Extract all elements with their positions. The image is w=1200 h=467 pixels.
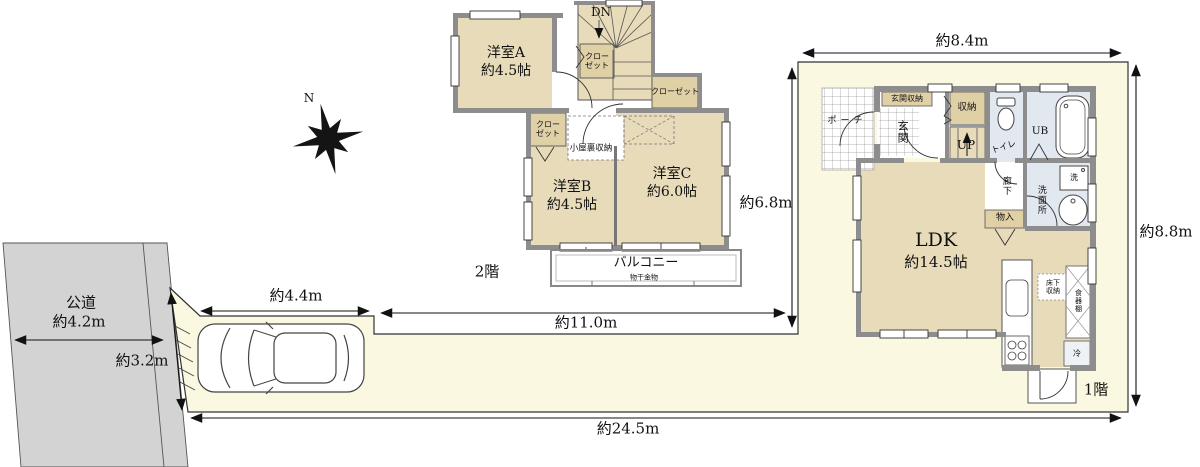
- washer-label: 洗: [1070, 173, 1078, 183]
- total-length-dimension: 約24.5m: [597, 419, 660, 439]
- unit-bath-label: UB: [1032, 125, 1049, 139]
- road-width-label: 約4.2m: [52, 312, 105, 332]
- car-icon: [198, 322, 364, 394]
- washroom-label: 洗面所: [1034, 185, 1046, 215]
- stairs-down-label: DN: [591, 5, 611, 21]
- balcony-note-label: 物干金物: [630, 273, 658, 282]
- north-label: N: [304, 91, 315, 107]
- right-depth-dimension: 約8.8m: [1139, 222, 1192, 242]
- closet-label-2: クローゼット: [651, 87, 699, 97]
- stairs-up-label: UP: [957, 138, 975, 154]
- cupboard-label: 食器棚: [1073, 289, 1082, 313]
- closet-label-1: クローゼット: [582, 52, 612, 70]
- balcony-label: バルコニー: [614, 256, 679, 273]
- floor2-label: 2階: [475, 262, 500, 282]
- fridge-label: 冷: [1073, 349, 1081, 359]
- road-name-label: 公道: [66, 293, 96, 313]
- underfloor-storage-label: 床下収納: [1045, 279, 1061, 295]
- closet-label-3: クローゼット: [533, 120, 563, 138]
- porch-tiles: [822, 88, 874, 170]
- attic-storage-label: 小屋裏収納: [570, 143, 613, 154]
- floor1-label: 1階: [1084, 380, 1109, 400]
- frontage-dimension: 約3.2m: [115, 351, 168, 371]
- closet-small-label: 物入: [996, 213, 1014, 225]
- compass-icon: [285, 96, 370, 181]
- parking-width-dimension: 約4.4m: [269, 286, 322, 306]
- hallway-label: 廊下: [999, 176, 1011, 196]
- ldk-label: LDK 約14.5帖: [904, 228, 967, 272]
- entrance-label: 玄関: [895, 120, 909, 144]
- inner-depth-dimension: 約6.8m: [739, 193, 792, 213]
- room-b-label: 洋室B約4.5帖: [547, 178, 597, 214]
- room-a-label: 洋室A約4.5帖: [481, 44, 531, 80]
- porch-label: ポーチ: [827, 116, 866, 128]
- middle-length-dimension: 約11.0m: [555, 313, 618, 333]
- entrance-storage-label: 玄関収納: [891, 94, 923, 104]
- top-width-dimension: 約8.4m: [935, 31, 988, 51]
- room-c-label: 洋室C約6.0帖: [647, 165, 697, 201]
- storage-label: 収納: [957, 102, 976, 114]
- floor-plan-page: 公道 約4.2m 約3.2m 約4.4m 約11.0m 約8.4m 約6.8m …: [0, 0, 1200, 467]
